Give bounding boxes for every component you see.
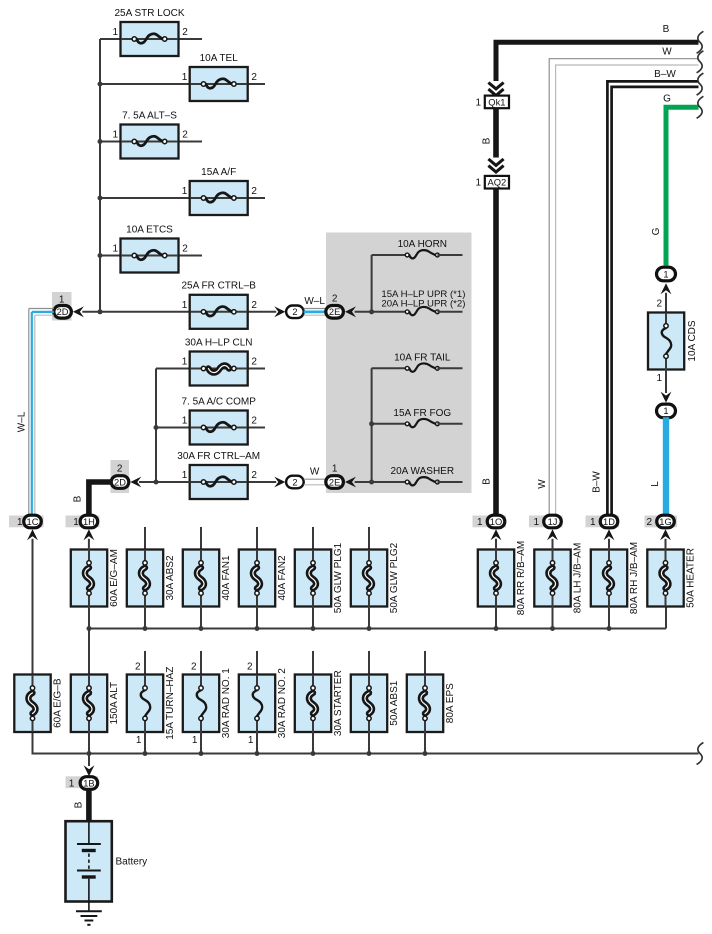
svg-text:1: 1 bbox=[182, 470, 188, 481]
svg-text:1B: 1B bbox=[83, 778, 94, 788]
svg-text:2: 2 bbox=[646, 517, 652, 528]
svg-text:2D: 2D bbox=[57, 307, 69, 317]
svg-text:25A FR CTRL–B: 25A FR CTRL–B bbox=[181, 281, 256, 292]
svg-text:2: 2 bbox=[247, 661, 253, 672]
svg-text:2: 2 bbox=[292, 307, 297, 317]
svg-text:2: 2 bbox=[251, 72, 257, 83]
svg-text:B: B bbox=[663, 24, 670, 35]
svg-text:15A A/F: 15A A/F bbox=[201, 167, 236, 178]
svg-text:1: 1 bbox=[182, 416, 188, 427]
svg-text:B–W: B–W bbox=[592, 471, 603, 493]
svg-text:10A FR TAIL: 10A FR TAIL bbox=[394, 353, 451, 364]
svg-text:G: G bbox=[663, 93, 671, 104]
svg-text:B: B bbox=[482, 137, 493, 144]
svg-text:40A FAN2: 40A FAN2 bbox=[277, 555, 288, 600]
svg-text:2: 2 bbox=[251, 300, 257, 311]
svg-text:1: 1 bbox=[192, 735, 198, 746]
svg-text:L: L bbox=[650, 481, 661, 487]
svg-text:B–W: B–W bbox=[654, 69, 676, 80]
svg-text:25A STR LOCK: 25A STR LOCK bbox=[114, 8, 184, 19]
svg-text:1: 1 bbox=[59, 294, 65, 305]
svg-text:2D: 2D bbox=[114, 477, 126, 487]
svg-text:1: 1 bbox=[477, 517, 483, 528]
svg-text:2E: 2E bbox=[329, 307, 340, 317]
svg-text:30A RAD NO. 2: 30A RAD NO. 2 bbox=[277, 668, 288, 738]
svg-text:50A ABS1: 50A ABS1 bbox=[389, 680, 400, 725]
svg-text:W: W bbox=[537, 479, 548, 489]
svg-text:10A TEL: 10A TEL bbox=[200, 53, 239, 64]
svg-text:W–L: W–L bbox=[304, 296, 325, 307]
svg-text:7. 5A ALT–S: 7. 5A ALT–S bbox=[122, 110, 177, 121]
svg-text:30A STARTER: 30A STARTER bbox=[333, 670, 344, 736]
svg-text:2: 2 bbox=[182, 130, 188, 141]
svg-text:1: 1 bbox=[17, 517, 23, 528]
svg-text:B: B bbox=[73, 801, 84, 808]
svg-text:30A FR CTRL–AM: 30A FR CTRL–AM bbox=[177, 451, 260, 462]
svg-text:2: 2 bbox=[332, 293, 338, 304]
svg-text:60A E/G–B: 60A E/G–B bbox=[53, 678, 64, 728]
svg-text:1D: 1D bbox=[603, 517, 615, 527]
svg-text:1: 1 bbox=[113, 130, 119, 141]
svg-text:W: W bbox=[310, 467, 320, 478]
svg-text:1: 1 bbox=[590, 517, 596, 528]
svg-text:1: 1 bbox=[475, 97, 481, 108]
svg-text:30A ABS2: 30A ABS2 bbox=[165, 555, 176, 600]
svg-text:20A H–LP UPR (*2): 20A H–LP UPR (*2) bbox=[381, 299, 465, 310]
svg-text:2: 2 bbox=[251, 357, 257, 368]
svg-text:1: 1 bbox=[73, 517, 79, 528]
svg-text:2: 2 bbox=[182, 244, 188, 255]
svg-text:2: 2 bbox=[251, 416, 257, 427]
svg-text:20A WASHER: 20A WASHER bbox=[391, 466, 455, 477]
svg-text:1: 1 bbox=[182, 357, 188, 368]
svg-text:1: 1 bbox=[69, 778, 75, 789]
svg-text:2: 2 bbox=[191, 661, 197, 672]
svg-text:1: 1 bbox=[663, 406, 668, 416]
svg-text:1: 1 bbox=[475, 178, 481, 189]
svg-text:150A ALT: 150A ALT bbox=[109, 682, 120, 725]
svg-text:1: 1 bbox=[182, 300, 188, 311]
svg-text:2: 2 bbox=[251, 470, 257, 481]
svg-text:50A GLW PLG2: 50A GLW PLG2 bbox=[389, 542, 400, 613]
svg-text:1: 1 bbox=[113, 27, 119, 38]
svg-text:80A LH J/B–AM: 80A LH J/B–AM bbox=[573, 543, 584, 614]
svg-text:1: 1 bbox=[113, 244, 119, 255]
svg-text:1J: 1J bbox=[548, 517, 558, 527]
svg-text:50A HEATER: 50A HEATER bbox=[686, 548, 697, 608]
svg-text:40A FAN1: 40A FAN1 bbox=[221, 555, 232, 600]
svg-text:1: 1 bbox=[248, 735, 254, 746]
svg-text:1G: 1G bbox=[659, 517, 671, 527]
svg-text:10A ETCS: 10A ETCS bbox=[126, 224, 173, 235]
svg-text:1: 1 bbox=[663, 269, 668, 279]
svg-text:10A CDS: 10A CDS bbox=[687, 320, 698, 361]
svg-text:10A HORN: 10A HORN bbox=[398, 239, 447, 250]
svg-text:2: 2 bbox=[292, 477, 297, 487]
svg-text:AQ2: AQ2 bbox=[488, 177, 507, 188]
svg-text:2: 2 bbox=[135, 661, 141, 672]
svg-text:W–L: W–L bbox=[17, 411, 28, 432]
svg-text:1: 1 bbox=[332, 464, 338, 475]
svg-text:B: B bbox=[72, 495, 83, 502]
svg-text:7. 5A A/C COMP: 7. 5A A/C COMP bbox=[181, 396, 256, 407]
svg-text:W: W bbox=[662, 47, 672, 58]
svg-text:80A RR R/B–AM: 80A RR R/B–AM bbox=[516, 541, 527, 615]
svg-text:1: 1 bbox=[533, 517, 539, 528]
svg-text:Qk1: Qk1 bbox=[488, 96, 505, 107]
svg-text:2: 2 bbox=[656, 299, 662, 310]
svg-text:B: B bbox=[482, 478, 493, 485]
svg-text:1O: 1O bbox=[490, 517, 502, 527]
svg-text:80A EPS: 80A EPS bbox=[445, 683, 456, 723]
svg-text:1: 1 bbox=[182, 186, 188, 197]
svg-text:Battery: Battery bbox=[116, 856, 148, 867]
svg-text:15A TURN–HAZ: 15A TURN–HAZ bbox=[165, 667, 176, 740]
svg-text:60A E/G–AM: 60A E/G–AM bbox=[109, 549, 120, 607]
svg-text:1: 1 bbox=[656, 373, 662, 384]
svg-text:2E: 2E bbox=[329, 477, 340, 487]
svg-text:1C: 1C bbox=[27, 517, 39, 527]
svg-text:1: 1 bbox=[136, 735, 142, 746]
svg-text:2: 2 bbox=[251, 186, 257, 197]
svg-text:1: 1 bbox=[182, 72, 188, 83]
svg-text:G: G bbox=[651, 227, 662, 235]
svg-text:30A RAD NO. 1: 30A RAD NO. 1 bbox=[221, 668, 232, 738]
svg-text:80A RH J/B–AM: 80A RH J/B–AM bbox=[629, 542, 640, 614]
svg-text:15A FR FOG: 15A FR FOG bbox=[393, 408, 451, 419]
svg-text:50A GLW PLG1: 50A GLW PLG1 bbox=[333, 542, 344, 613]
svg-text:2: 2 bbox=[117, 463, 123, 474]
svg-text:2: 2 bbox=[182, 27, 188, 38]
svg-text:1H: 1H bbox=[83, 517, 95, 527]
svg-text:30A H–LP CLN: 30A H–LP CLN bbox=[185, 337, 253, 348]
